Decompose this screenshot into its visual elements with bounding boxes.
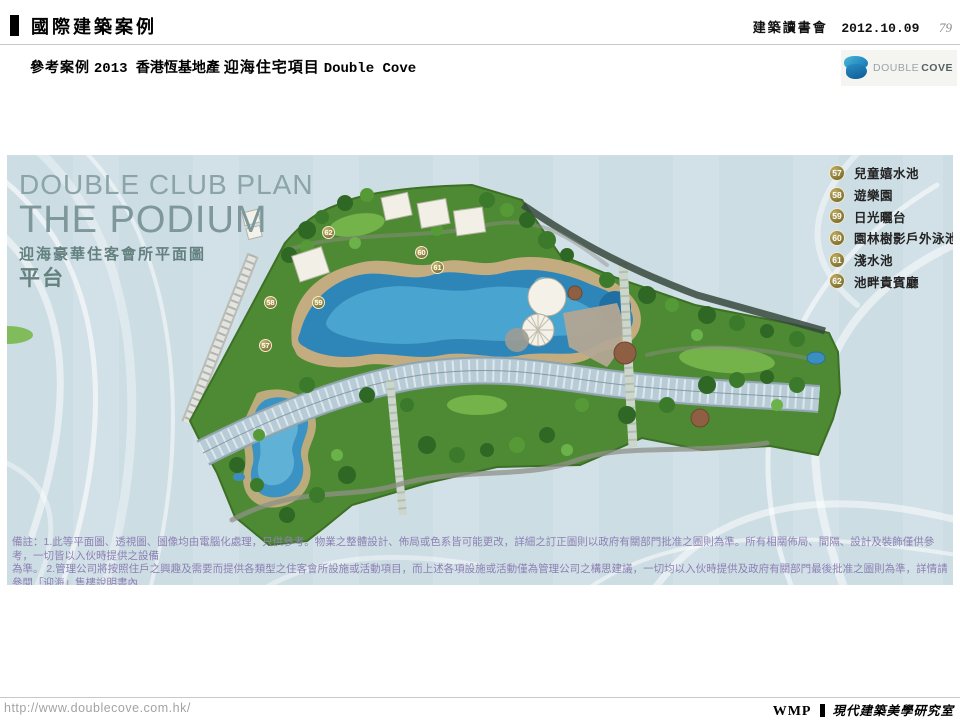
legend-item-58: 58 遊樂園: [829, 184, 953, 206]
plan-title-en-1: DOUBLE CLUB PLAN: [19, 171, 314, 199]
slide-section-title: 國際建築案例: [31, 13, 157, 39]
plan-marker-61: 61: [431, 261, 444, 274]
plan-title-en-2: THE PODIUM: [19, 201, 314, 239]
site-plan-image: DOUBLE CLUB PLAN THE PODIUM 迎海豪華住客會所平面圖 …: [7, 155, 953, 585]
legend-item-60: 60 園林樹影戶外泳池: [829, 227, 953, 249]
legend-badge-57: 57: [829, 165, 845, 181]
header-divider: [0, 44, 960, 45]
event-name: 建築讀書會: [753, 20, 828, 35]
footer-url[interactable]: http://www.doublecove.com.hk/: [4, 701, 191, 715]
presentation-slide: 國際建築案例 建築讀書會 2012.10.09 79 參考案例 2013 香港恆…: [0, 0, 960, 720]
plan-legend: 57 兒童嬉水池 58 遊樂園 59 日光曬台 60 園林樹影戶外泳池 61 淺…: [829, 162, 953, 292]
plan-marker-57: 57: [259, 339, 272, 352]
disclaimer-line-1: 備註：1.此等平面圖、透視圖、圖像均由電腦化處理，只供參考。物業之整體設計、佈局…: [12, 536, 948, 563]
plan-marker-58: 58: [264, 296, 277, 309]
subtitle-prefix: 參考案例: [30, 59, 90, 75]
legend-badge-61: 61: [829, 252, 845, 268]
subtitle-year-developer: 2013 香港恆基地產: [94, 61, 220, 77]
legend-item-62: 62 池畔貴賓廳: [829, 270, 953, 292]
legend-label-59: 日光曬台: [854, 207, 906, 226]
legend-item-57: 57 兒童嬉水池: [829, 162, 953, 184]
plan-title-zh-1: 迎海豪華住客會所平面圖: [19, 247, 314, 262]
footer-studio: 現代建築美學研究室: [832, 704, 954, 718]
footer-divider: [0, 697, 960, 698]
slide-subtitle: 參考案例 2013 香港恆基地產 迎海住宅項目 Double Cove: [30, 56, 416, 77]
legend-badge-59: 59: [829, 208, 845, 224]
doublecove-logo-icon: [843, 56, 869, 80]
doublecove-logo: DOUBLECOVE: [841, 50, 957, 86]
disclaimer-line-2: 為準。 2.管理公司將按照住戶之興趣及需要而提供各類型之住客會所設施或活動項目，…: [12, 563, 948, 585]
legend-label-61: 淺水池: [854, 250, 893, 269]
page-number: 79: [939, 20, 952, 35]
plan-marker-62: 62: [322, 226, 335, 239]
footer-brand-bar: [820, 704, 825, 717]
subtitle-project: 迎海住宅項目: [224, 59, 320, 76]
legend-badge-60: 60: [829, 230, 845, 246]
legend-item-61: 61 淺水池: [829, 249, 953, 271]
legend-badge-58: 58: [829, 187, 845, 203]
subtitle-project-en: Double Cove: [324, 61, 416, 77]
plan-marker-59: 59: [312, 296, 325, 309]
plan-title-zh-2: 平台: [19, 268, 314, 289]
section-marker-bar: [10, 15, 19, 36]
legend-label-60: 園林樹影戶外泳池: [854, 228, 953, 247]
legend-item-59: 59 日光曬台: [829, 205, 953, 227]
footer-credit: WMP現代建築美學研究室: [773, 700, 954, 720]
header-meta: 建築讀書會 2012.10.09 79: [753, 17, 952, 36]
footer-brand: WMP: [773, 704, 812, 719]
doublecove-logo-text: DOUBLECOVE: [873, 62, 953, 74]
event-date: 2012.10.09: [841, 21, 919, 36]
plan-title-block: DOUBLE CLUB PLAN THE PODIUM 迎海豪華住客會所平面圖 …: [19, 171, 314, 289]
disclaimer-text: 備註：1.此等平面圖、透視圖、圖像均由電腦化處理，只供參考。物業之整體設計、佈局…: [12, 536, 948, 585]
plan-marker-60: 60: [415, 246, 428, 259]
legend-badge-62: 62: [829, 273, 845, 289]
legend-label-58: 遊樂園: [854, 185, 893, 204]
legend-label-57: 兒童嬉水池: [854, 163, 919, 182]
legend-label-62: 池畔貴賓廳: [854, 272, 919, 291]
